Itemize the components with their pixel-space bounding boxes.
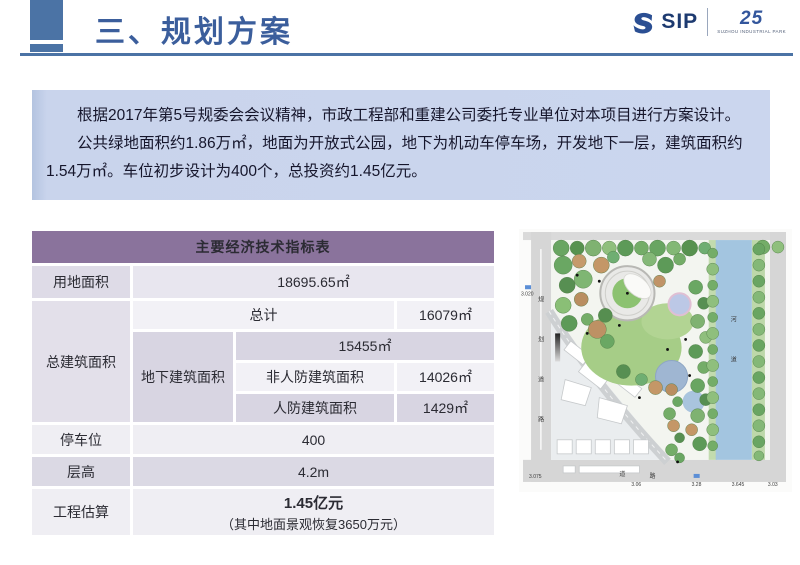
page-title: 三、规划方案	[95, 7, 293, 51]
underground-label: 地下建筑面积	[133, 332, 233, 422]
site-plan-svg: 规 划 道 路 河 道 道 路 3.020 3.075 3.06 3.28 3.…	[519, 229, 792, 492]
estimate-note: （其中地面景观恢复3650万元）	[137, 514, 490, 533]
estimate-cell: 1.45亿元 （其中地面景观恢复3650万元）	[133, 489, 494, 535]
river-label-char: 道	[731, 356, 737, 364]
non-civil-defense-value: 14026㎡	[397, 363, 494, 391]
elevation-marker-left	[525, 285, 531, 289]
estimate-value: 1.45亿元	[137, 492, 490, 513]
river	[716, 240, 752, 460]
intro-paragraph-1: 根据2017年第5号规委会会议精神，市政工程部和重建公司委托专业单位对本项目进行…	[46, 102, 754, 130]
non-civil-defense-label: 非人防建筑面积	[236, 363, 394, 391]
left-road-label-char: 路	[538, 416, 544, 424]
elevation-value: 3.03	[768, 482, 778, 488]
land-area-value: 18695.65㎡	[133, 266, 494, 298]
elevation-value: 3.075	[529, 474, 542, 480]
table-row: 用地面积 18695.65㎡	[32, 266, 494, 298]
table-row: 总建筑面积 总计 16079㎡	[32, 301, 494, 329]
left-road-label-char: 规	[538, 295, 544, 303]
bottom-road-label-char: 道	[619, 470, 625, 478]
table-row: 工程估算 1.45亿元 （其中地面景观恢复3650万元）	[32, 489, 494, 535]
floor-height-label: 层高	[32, 457, 130, 486]
anniversary-mark: 25 SUZHOU INDUSTRIAL PARK	[717, 9, 786, 35]
right-road	[770, 232, 786, 482]
table-row: 停车位 400	[32, 425, 494, 454]
underground-total-value: 15455㎡	[236, 332, 494, 360]
anniversary-25: 25	[740, 9, 763, 28]
sip-logo-text: SIP	[661, 10, 698, 34]
total-building-label: 总建筑面积	[32, 301, 130, 422]
pond-small	[669, 293, 691, 315]
site-plan-image: 规 划 道 路 河 道 道 路 3.020 3.075 3.06 3.28 3.…	[519, 229, 792, 492]
logo-divider	[707, 8, 708, 36]
left-road-label-char: 划	[538, 335, 544, 343]
top-road	[523, 232, 786, 240]
table-title-row: 主要经济技术指标表	[32, 231, 494, 263]
elevation-value: 3.645	[732, 482, 745, 488]
parking-value: 400	[133, 425, 494, 454]
elevation-value: 3.28	[692, 482, 702, 488]
indicators-table: 主要经济技术指标表 用地面积 18695.65㎡ 总建筑面积 总计 16079㎡…	[29, 228, 497, 538]
table-title: 主要经济技术指标表	[32, 231, 494, 263]
header-accent-bar	[30, 44, 63, 52]
total-sub-label: 总计	[133, 301, 394, 329]
intro-paragraph-2: 公共绿地面积约1.86万㎡，地面为开放式公园，地下为机动车停车场，开发地下一层，…	[46, 130, 754, 186]
total-sub-value: 16079㎡	[397, 301, 494, 329]
left-road-label-char: 道	[538, 376, 544, 384]
floor-height-value: 4.2m	[133, 457, 494, 486]
civil-defense-value: 1429㎡	[397, 394, 494, 422]
sip-logo: SIP 25 SUZHOU INDUSTRIAL PARK	[629, 8, 786, 36]
header-accent-square	[30, 0, 63, 40]
scale-bar	[555, 333, 560, 361]
sip-s-swoosh-icon	[629, 9, 656, 36]
elevation-value: 3.06	[631, 482, 641, 488]
river-label-char: 河	[731, 315, 737, 323]
bottom-road-label-char: 路	[649, 472, 655, 480]
parking-label: 停车位	[32, 425, 130, 454]
intro-textbox: 根据2017年第5号规委会会议精神，市政工程部和重建公司委托专业单位对本项目进行…	[32, 90, 770, 200]
table-row: 层高 4.2m	[32, 457, 494, 486]
header-divider-line	[20, 53, 793, 56]
elevation-left: 3.020	[521, 291, 534, 297]
civil-defense-label: 人防建筑面积	[236, 394, 394, 422]
anniversary-tagline: SUZHOU INDUSTRIAL PARK	[717, 30, 786, 35]
estimate-label: 工程估算	[32, 489, 130, 535]
elevation-marker-bottom	[694, 474, 700, 478]
land-area-label: 用地面积	[32, 266, 130, 298]
